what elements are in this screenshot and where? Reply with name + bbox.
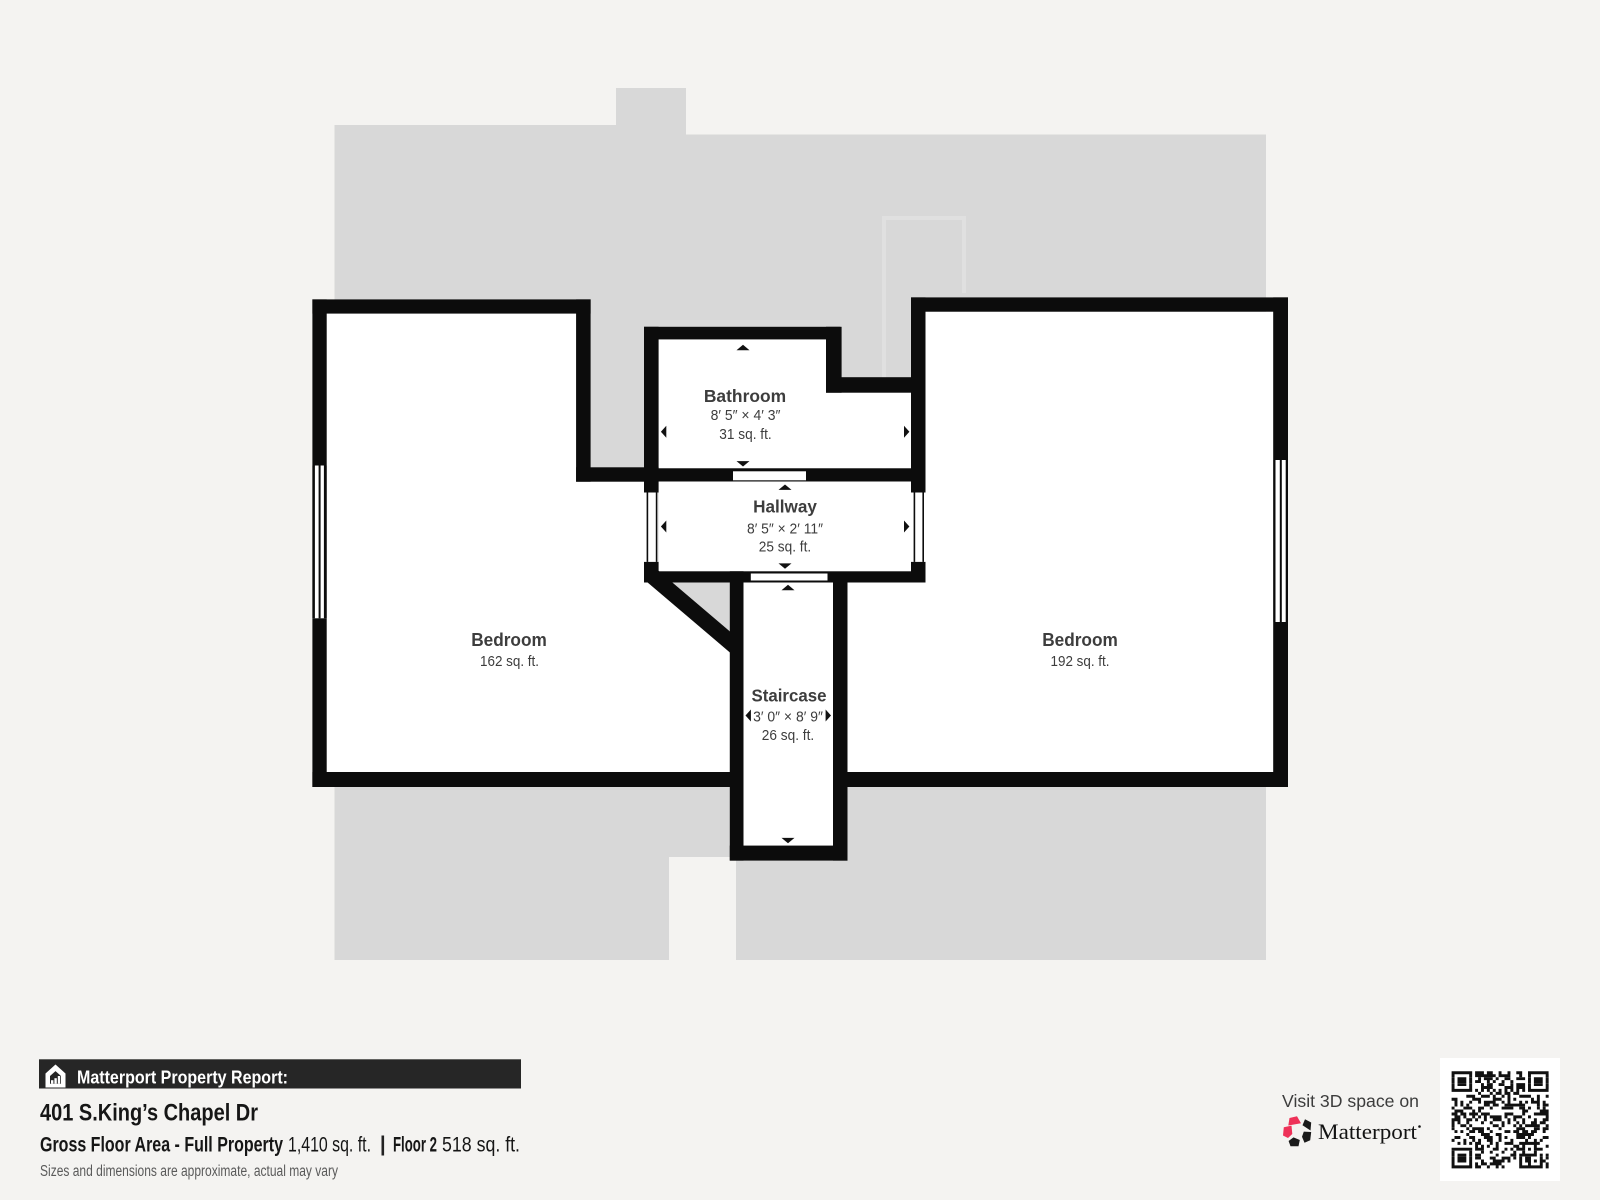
svg-text:3′ 0″ × 8′ 9″: 3′ 0″ × 8′ 9″ (753, 710, 823, 726)
svg-text:Staircase: Staircase (752, 686, 827, 706)
svg-text:8′ 5″ × 4′ 3″: 8′ 5″ × 4′ 3″ (711, 408, 781, 424)
svg-text:Sizes and dimensions are appro: Sizes and dimensions are approximate, ac… (40, 1163, 338, 1180)
svg-text:Matterport Property Report:: Matterport Property Report: (77, 1068, 288, 1088)
svg-text:Gross Floor Area - Full Proper: Gross Floor Area - Full Property1,410 sq… (40, 1134, 520, 1157)
svg-text:Matterport: Matterport (1318, 1119, 1417, 1144)
svg-text:25 sq. ft.: 25 sq. ft. (759, 540, 811, 556)
svg-text:162 sq. ft.: 162 sq. ft. (480, 653, 539, 670)
svg-text:31 sq. ft.: 31 sq. ft. (719, 427, 771, 443)
svg-text:Bathroom: Bathroom (704, 386, 786, 406)
svg-text:Hallway: Hallway (753, 497, 817, 517)
svg-text:Bedroom: Bedroom (1042, 629, 1118, 650)
svg-text:8′ 5″ × 2′ 11″: 8′ 5″ × 2′ 11″ (747, 522, 823, 538)
svg-text:Bedroom: Bedroom (471, 629, 547, 650)
svg-text:26 sq. ft.: 26 sq. ft. (762, 728, 814, 744)
svg-text:192 sq. ft.: 192 sq. ft. (1051, 653, 1110, 670)
svg-text:401 S.King’s Chapel Dr: 401 S.King’s Chapel Dr (40, 1100, 258, 1127)
svg-text:Visit 3D space on: Visit 3D space on (1282, 1091, 1419, 1111)
